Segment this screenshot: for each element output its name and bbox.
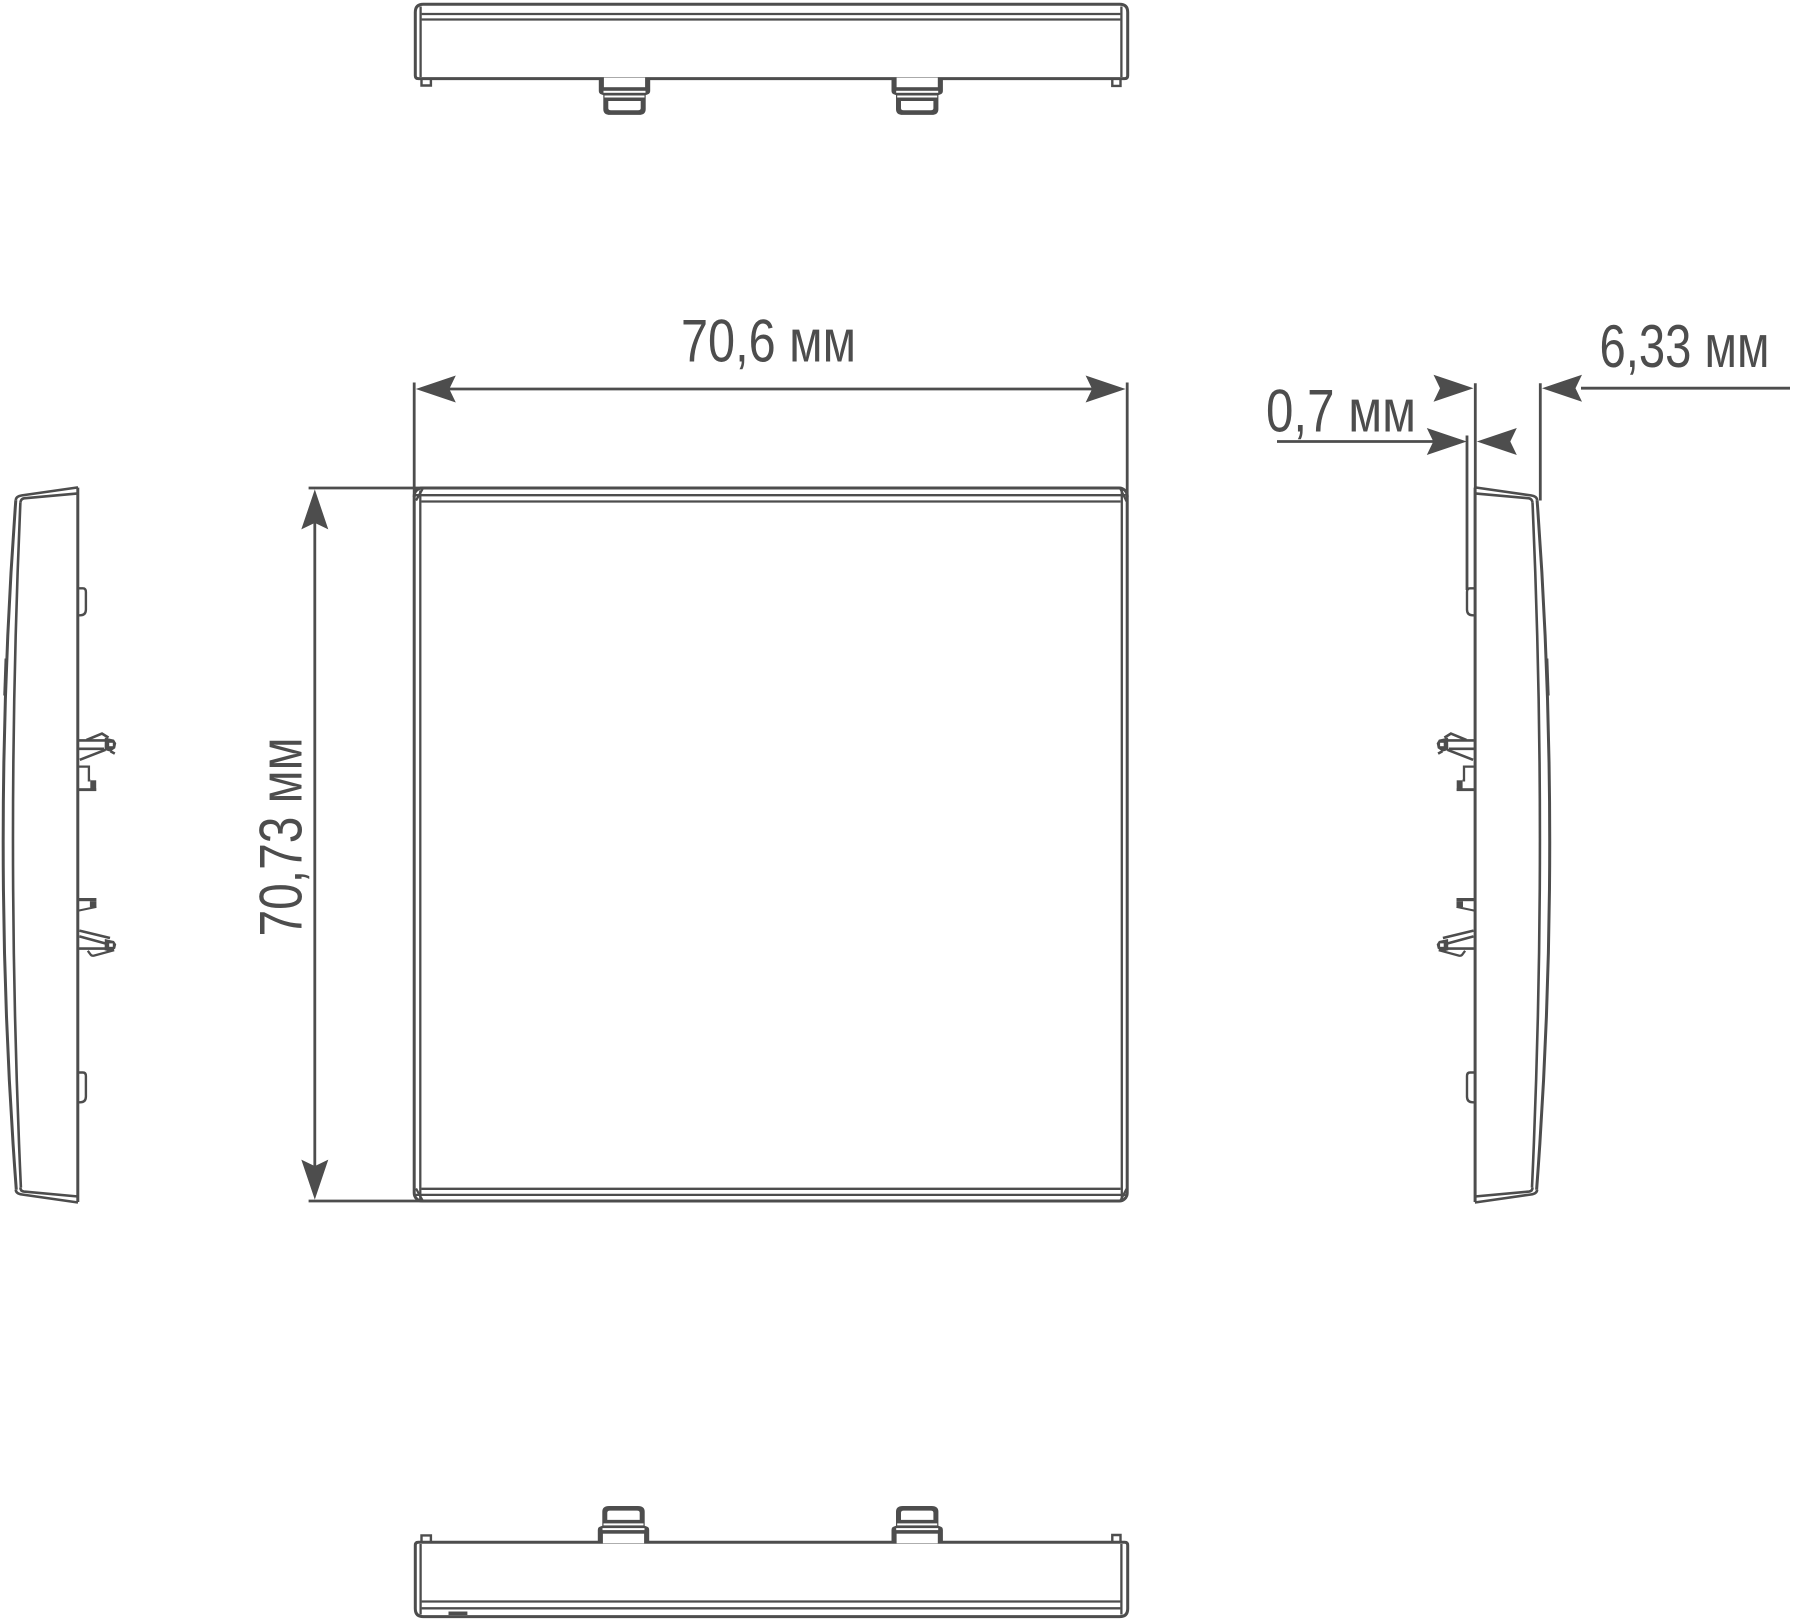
svg-text:0,7 мм: 0,7 мм (1266, 378, 1416, 445)
svg-text:6,33 мм: 6,33 мм (1600, 313, 1770, 380)
svg-text:70,73 мм: 70,73 мм (247, 738, 314, 937)
svg-text:70,6 мм: 70,6 мм (681, 308, 856, 375)
